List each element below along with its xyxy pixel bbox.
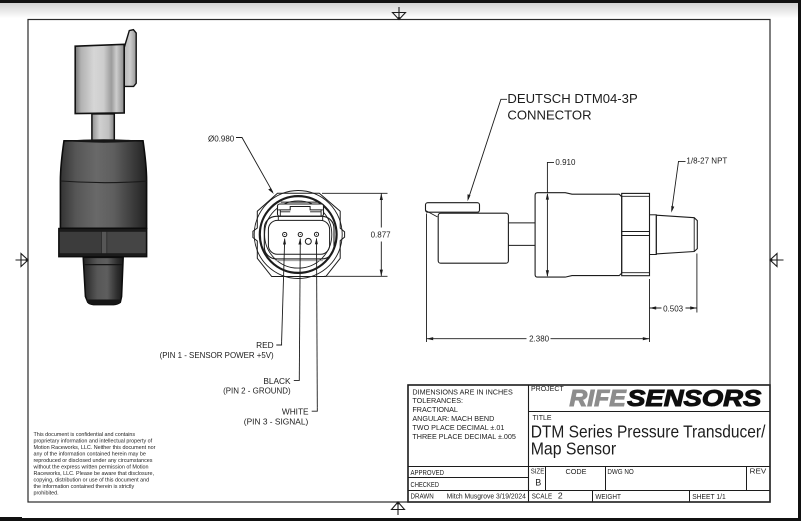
svg-text:CODE: CODE [566, 467, 587, 476]
svg-text:DWG NO: DWG NO [607, 467, 634, 476]
svg-text:TOLERANCES:: TOLERANCES: [412, 396, 463, 405]
svg-text:CHECKED: CHECKED [411, 480, 440, 489]
svg-text:2.380: 2.380 [529, 335, 550, 344]
svg-text:WHITE: WHITE [282, 406, 309, 416]
svg-text:REV: REV [750, 467, 767, 476]
svg-text:FRACTIONAL: FRACTIONAL [412, 405, 458, 414]
svg-text:proprietary information and in: proprietary information and intellectual… [34, 439, 153, 445]
svg-text:Map Sensor: Map Sensor [531, 439, 617, 459]
svg-text:0.503: 0.503 [663, 304, 684, 313]
svg-text:1/8-27 NPT: 1/8-27 NPT [686, 157, 727, 166]
svg-text:SIZE: SIZE [531, 466, 545, 475]
svg-text:prohibited.: prohibited. [34, 491, 59, 497]
svg-text:without the express written pe: without the express written permission o… [33, 465, 149, 471]
svg-text:any of the information contain: any of the information contained herein … [34, 452, 146, 458]
svg-text:RED: RED [256, 340, 274, 350]
svg-text:SHEET 1/1: SHEET 1/1 [692, 492, 726, 501]
svg-text:Raceworks, LLC. Please be awar: Raceworks, LLC. Please be aware that dis… [34, 471, 155, 477]
svg-text:CONNECTOR: CONNECTOR [507, 108, 591, 123]
svg-text:DIMENSIONS ARE IN INCHES: DIMENSIONS ARE IN INCHES [412, 387, 513, 396]
svg-text:SCALE: SCALE [532, 492, 552, 501]
svg-text:DEUTSCH DTM04-3P: DEUTSCH DTM04-3P [507, 91, 638, 106]
svg-text:0.910: 0.910 [555, 158, 576, 167]
svg-text:Ø0.980: Ø0.980 [208, 134, 235, 143]
svg-text:the information contained ther: the information contained therein is str… [34, 484, 135, 490]
svg-text:RIFE: RIFE [569, 385, 627, 411]
svg-text:THREE PLACE DECIMAL ±.005: THREE PLACE DECIMAL ±.005 [412, 432, 516, 441]
svg-text:WEIGHT: WEIGHT [595, 492, 621, 501]
svg-text:0.877: 0.877 [371, 230, 392, 239]
svg-text:SENSORS: SENSORS [627, 385, 762, 411]
svg-text:DRAWN: DRAWN [411, 492, 434, 501]
svg-text:(PIN 1 - SENSOR POWER +5V): (PIN 1 - SENSOR POWER +5V) [160, 350, 274, 360]
svg-text:This document is confidential: This document is confidential and contai… [34, 432, 136, 438]
svg-text:B: B [535, 478, 541, 488]
svg-text:reproduced or disclosed under: reproduced or disclosed under any circum… [34, 458, 153, 464]
svg-text:TWO PLACE DECIMAL ±.01: TWO PLACE DECIMAL ±.01 [412, 423, 504, 432]
svg-text:(PIN 3 - SIGNAL): (PIN 3 - SIGNAL) [244, 417, 309, 427]
svg-text:APPROVED: APPROVED [411, 468, 445, 477]
svg-text:copying, distribution or use o: copying, distribution or use of this doc… [34, 478, 150, 484]
svg-text:(PIN 2 - GROUND): (PIN 2 - GROUND) [223, 385, 291, 395]
svg-text:ANGULAR: MACH BEND: ANGULAR: MACH BEND [412, 414, 494, 423]
svg-text:PROJECT: PROJECT [531, 386, 564, 393]
svg-text:Mitch Musgrove 3/19/2024: Mitch Musgrove 3/19/2024 [447, 491, 526, 500]
svg-text:2: 2 [558, 490, 563, 500]
svg-text:Motion Raceworks, LLC. Neither: Motion Raceworks, LLC. Neither this docu… [34, 445, 156, 451]
